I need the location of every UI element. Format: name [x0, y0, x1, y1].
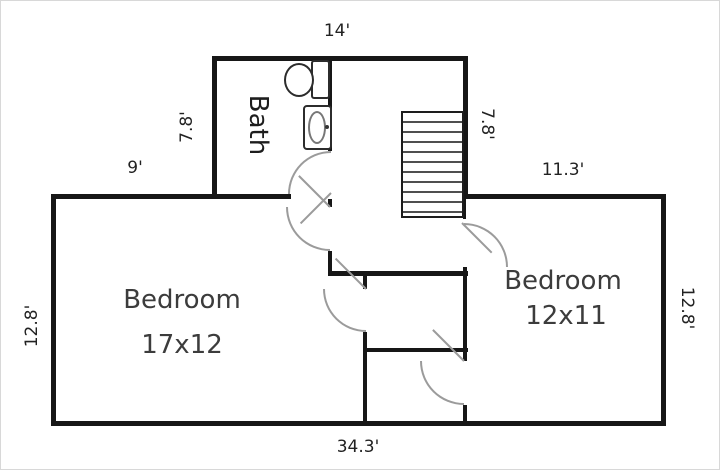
dimension-top-width: 14': [324, 21, 350, 41]
wall-main-bottom: [51, 421, 666, 426]
staircase-icon: [401, 111, 464, 218]
dimension-upper-left-offset: 9': [127, 158, 143, 178]
toilet-bowl: [284, 63, 314, 97]
room-size-bedroom-right: 12x11: [525, 301, 607, 331]
toilet-icon: [284, 59, 332, 101]
wall-main-right: [661, 194, 666, 426]
room-label-bedroom-left: Bedroom: [123, 285, 241, 315]
room-size-bedroom-left: 17x12: [141, 330, 223, 360]
wall-main-top-left: [51, 194, 217, 199]
wall-bedroom-right-west-upper: [463, 267, 467, 361]
room-label-bath: Bath: [243, 95, 273, 155]
wall-closet-vertical: [363, 332, 367, 421]
dimension-bath-side: 7.8': [177, 111, 197, 143]
dimension-upper-right-offset: 11.3': [542, 160, 585, 180]
floor-plan: Bath Bedroom 17x12 Bedroom 12x11 14' 7.8…: [0, 0, 720, 470]
wall-main-top-right: [463, 194, 666, 199]
dimension-right-depth: 12.8': [677, 287, 697, 330]
bedroom-left-door-arc: [286, 207, 330, 251]
dimension-left-depth: 12.8': [22, 305, 42, 348]
wall-bath-south: [212, 194, 291, 199]
wall-upper-top: [212, 56, 468, 61]
wall-bedroom-right-west-lower: [463, 405, 467, 421]
bedroom-left-closet-door-arc: [323, 289, 366, 332]
dimension-bottom-width: 34.3': [337, 437, 380, 457]
bedroom-right-closet-door-leaf: [432, 329, 465, 362]
dimension-stairs-side: 7.8': [477, 108, 497, 140]
wall-main-left: [51, 194, 56, 426]
bedroom-right-closet-door-arc: [420, 361, 464, 405]
room-label-bedroom-right: Bedroom: [504, 266, 622, 296]
sink-icon: [303, 105, 332, 150]
sink-basin: [308, 111, 326, 144]
sink-faucet: [325, 125, 329, 129]
wall-upper-left: [212, 56, 217, 199]
